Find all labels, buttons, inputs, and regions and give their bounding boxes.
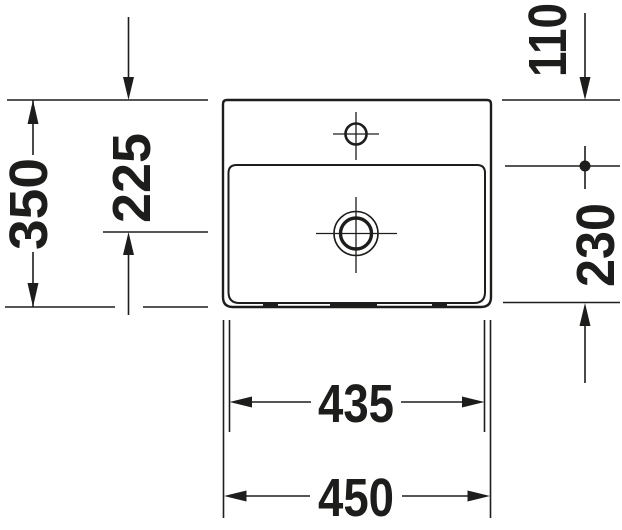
dim-label-right-top: 110 bbox=[518, 3, 578, 77]
technical-drawing: 350 225 110 230 435 450 bbox=[0, 0, 622, 530]
faucet-hole bbox=[333, 112, 379, 160]
dim-350-arrow-up bbox=[28, 100, 39, 124]
dimension-lines bbox=[28, 13, 591, 502]
faucet-centerlines bbox=[333, 112, 379, 160]
dim-label-bottom-outer: 450 bbox=[318, 468, 394, 528]
dim-450-arrow-right bbox=[468, 491, 491, 502]
dim-225-arrow-down bbox=[123, 77, 134, 100]
drain-centerlines bbox=[316, 197, 397, 273]
dim-dot-marker bbox=[580, 161, 591, 172]
dim-435-arrow-left bbox=[230, 397, 253, 408]
dim-350-arrow-down bbox=[28, 283, 39, 307]
drain bbox=[316, 197, 397, 273]
drawing-canvas: 350 225 110 230 435 450 bbox=[0, 0, 622, 530]
dimension-labels: 350 225 110 230 435 450 bbox=[0, 3, 622, 528]
dim-230-arrow-up bbox=[580, 303, 591, 326]
reference-lines bbox=[5, 100, 620, 518]
dim-450-arrow-left bbox=[224, 491, 247, 502]
dim-435-arrow-right bbox=[462, 397, 485, 408]
dim-label-left-inner: 225 bbox=[102, 133, 162, 223]
dim-225-arrow-up bbox=[123, 232, 134, 255]
dim-110-arrow-down bbox=[580, 77, 591, 100]
dim-label-right-bottom: 230 bbox=[566, 203, 622, 287]
dim-label-bottom-inner: 435 bbox=[318, 374, 394, 434]
dim-label-left-outer: 350 bbox=[0, 158, 59, 250]
basin bbox=[223, 100, 491, 307]
basin-outer-outline bbox=[223, 100, 491, 307]
